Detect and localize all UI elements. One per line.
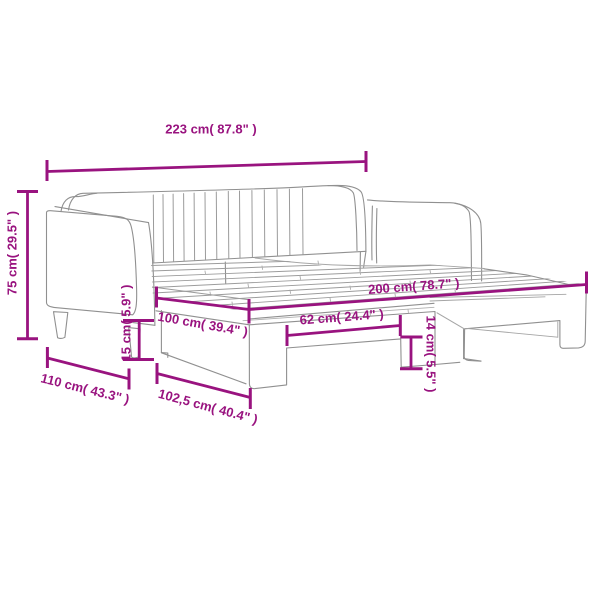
svg-text:223 cm( 87.8" ): 223 cm( 87.8" ) [165, 122, 256, 137]
svg-text:15 cm( 5.9" ): 15 cm( 5.9" ) [119, 285, 134, 362]
svg-text:14 cm( 5.5" ): 14 cm( 5.5" ) [424, 316, 439, 393]
svg-text:75 cm( 29.5" ): 75 cm( 29.5" ) [5, 211, 20, 295]
